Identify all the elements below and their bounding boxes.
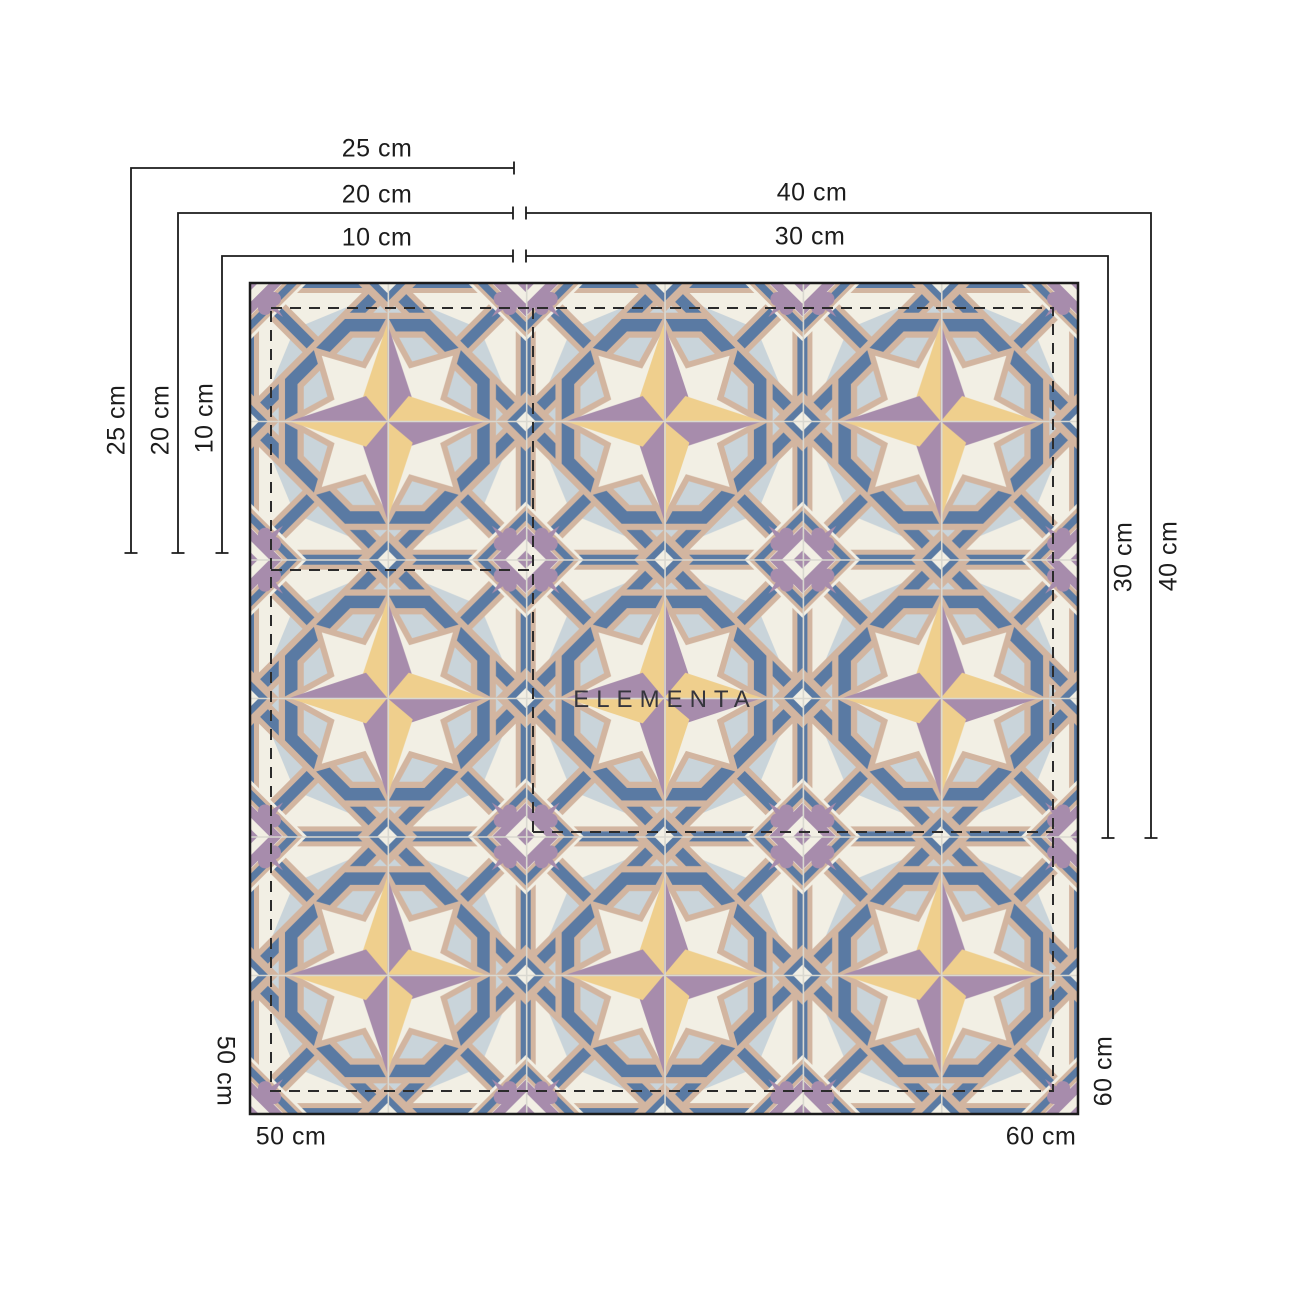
dim-label-10cm-top: 10 cm [342,224,413,253]
brand-wordmark: ELEMENTA [573,686,757,714]
dim-label-50cm-left-vertical: 50 cm [211,1036,240,1107]
dim-label-50cm-bottom: 50 cm [256,1123,327,1152]
dim-label-20cm-top: 20 cm [342,181,413,210]
dim-label-40cm-right: 40 cm [1155,521,1184,592]
dim-label-10cm-left: 10 cm [191,383,220,454]
dim-label-40cm-top: 40 cm [777,179,848,208]
dim-label-30cm-top: 30 cm [775,223,846,252]
dim-label-20cm-left: 20 cm [147,385,176,456]
dim-label-30cm-right: 30 cm [1110,522,1139,593]
dim-label-60cm-right-vertical: 60 cm [1090,1036,1119,1107]
dim-label-25cm-top: 25 cm [342,135,413,164]
dim-label-60cm-bottom: 60 cm [1006,1123,1077,1152]
tile-dimensions-diagram: 25 cm 20 cm 10 cm 40 cm 30 cm 25 cm 20 c… [0,0,1291,1291]
dim-label-25cm-left: 25 cm [103,385,132,456]
